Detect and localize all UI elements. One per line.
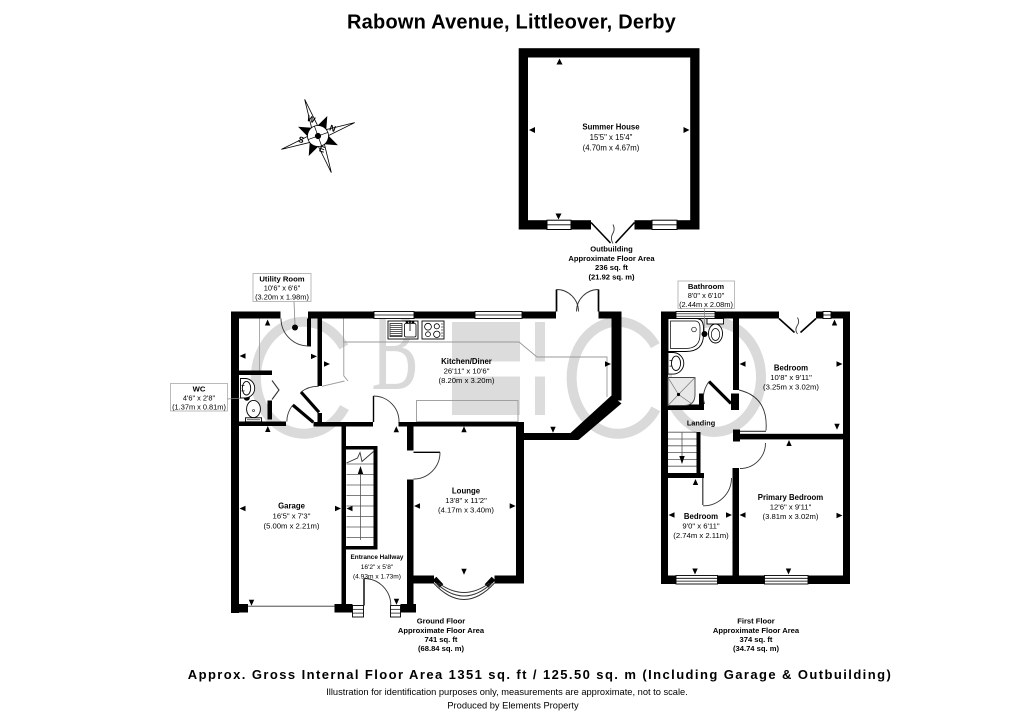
svg-text:Ground Floor: Ground Floor <box>417 617 466 626</box>
svg-text:Entrance Hallway: Entrance Hallway <box>351 554 404 561</box>
svg-text:(34.74 sq. m): (34.74 sq. m) <box>733 644 779 653</box>
svg-text:(2.44m x 2.08m): (2.44m x 2.08m) <box>679 300 733 309</box>
svg-text:Landing: Landing <box>687 419 715 428</box>
svg-text:Kitchen/Diner: Kitchen/Diner <box>441 357 492 366</box>
svg-text:Approx. Gross Internal Floor A: Approx. Gross Internal Floor Area 1351 s… <box>188 667 892 682</box>
svg-text:Approximate Floor Area: Approximate Floor Area <box>713 626 800 635</box>
svg-text:(1.37m x 0.81m): (1.37m x 0.81m) <box>172 402 226 411</box>
svg-text:(68.84 sq. m): (68.84 sq. m) <box>418 644 464 653</box>
svg-text:741 sq. ft: 741 sq. ft <box>425 635 458 644</box>
svg-text:(3.20m x 1.98m): (3.20m x 1.98m) <box>255 293 309 302</box>
svg-text:(8.20m x 3.20m): (8.20m x 3.20m) <box>439 376 495 385</box>
svg-text:(2.74m x 2.11m): (2.74m x 2.11m) <box>673 531 729 540</box>
svg-text:Utility Room: Utility Room <box>259 275 304 284</box>
svg-text:12'6" x 9'11": 12'6" x 9'11" <box>770 503 812 512</box>
svg-text:8'0" x 6'10": 8'0" x 6'10" <box>688 291 725 300</box>
svg-text:Illustration for identificatio: Illustration for identification purposes… <box>326 687 688 697</box>
svg-text:Lounge: Lounge <box>452 487 481 496</box>
svg-text:Approximate Floor Area: Approximate Floor Area <box>398 626 485 635</box>
svg-text:16'5" x 7'3": 16'5" x 7'3" <box>273 512 311 521</box>
svg-text:13'8" x 11'2": 13'8" x 11'2" <box>445 496 487 505</box>
svg-text:Outbuilding: Outbuilding <box>590 245 633 254</box>
svg-text:10'6" x 6'6": 10'6" x 6'6" <box>264 284 301 293</box>
svg-text:(4.17m x 3.40m): (4.17m x 3.40m) <box>438 506 494 515</box>
svg-text:Garage: Garage <box>278 502 306 511</box>
svg-text:(4.70m x 4.67m): (4.70m x 4.67m) <box>583 144 640 153</box>
svg-text:4'6" x 2'8": 4'6" x 2'8" <box>183 394 216 403</box>
svg-text:Bedroom: Bedroom <box>684 512 718 521</box>
svg-text:Approximate Floor Area: Approximate Floor Area <box>568 254 655 263</box>
svg-text:(21.92 sq. m): (21.92 sq. m) <box>588 272 634 281</box>
svg-text:Bedroom: Bedroom <box>774 364 808 373</box>
svg-text:15'5" x 15'4": 15'5" x 15'4" <box>590 133 633 142</box>
svg-text:26'11" x 10'6": 26'11" x 10'6" <box>444 367 490 376</box>
svg-text:Rabown Avenue, Littleover, Der: Rabown Avenue, Littleover, Derby <box>347 12 677 34</box>
svg-text:(4.93m x 1.73m): (4.93m x 1.73m) <box>353 574 401 581</box>
svg-text:9'0" x 6'11": 9'0" x 6'11" <box>682 522 720 531</box>
svg-text:(5.00m x 2.21m): (5.00m x 2.21m) <box>264 522 320 531</box>
svg-text:Produced by Elements Property: Produced by Elements Property <box>447 701 579 711</box>
svg-text:Summer House: Summer House <box>582 123 640 132</box>
svg-text:Primary Bedroom: Primary Bedroom <box>758 493 823 502</box>
svg-text:16'2" x 5'8": 16'2" x 5'8" <box>361 564 394 571</box>
svg-text:Bathroom: Bathroom <box>688 282 724 291</box>
svg-text:(3.81m x 3.02m): (3.81m x 3.02m) <box>763 512 819 521</box>
svg-text:First Floor: First Floor <box>737 617 775 626</box>
svg-text:374 sq. ft: 374 sq. ft <box>740 635 773 644</box>
svg-text:10'8" x 9'11": 10'8" x 9'11" <box>770 373 812 382</box>
svg-text:236 sq. ft: 236 sq. ft <box>595 263 628 272</box>
svg-text:(3.25m x 3.02m): (3.25m x 3.02m) <box>763 383 819 392</box>
svg-text:WC: WC <box>193 385 206 394</box>
